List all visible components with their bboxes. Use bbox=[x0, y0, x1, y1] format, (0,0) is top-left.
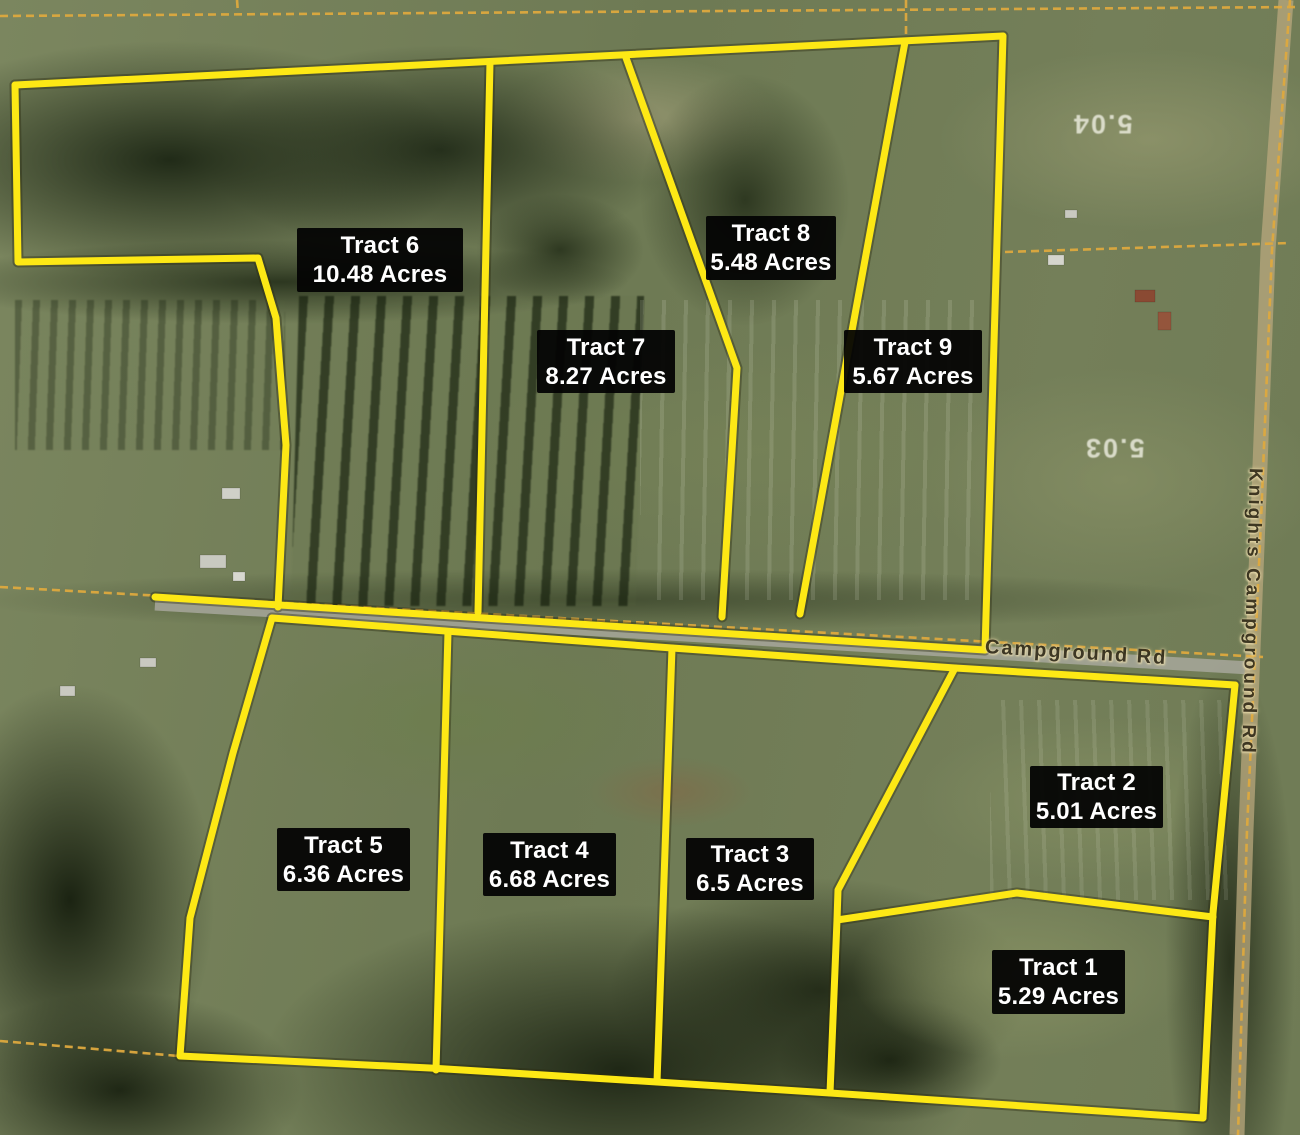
tract-name: Tract 1 bbox=[1019, 953, 1098, 982]
tract-5-label: Tract 5 6.36 Acres bbox=[277, 828, 410, 891]
tract-7-label: Tract 7 8.27 Acres bbox=[537, 330, 675, 393]
tract-acres: 10.48 Acres bbox=[313, 260, 448, 289]
tract-1-label: Tract 1 5.29 Acres bbox=[992, 950, 1125, 1014]
tract-8-label: Tract 8 5.48 Acres bbox=[706, 216, 836, 280]
tract-2-label: Tract 2 5.01 Acres bbox=[1030, 766, 1163, 828]
tract-acres: 6.68 Acres bbox=[489, 865, 610, 894]
tract-acres: 5.48 Acres bbox=[710, 248, 831, 277]
tract-acres: 5.67 Acres bbox=[852, 362, 973, 391]
tract-4-label: Tract 4 6.68 Acres bbox=[483, 833, 616, 896]
tract-9-label: Tract 9 5.67 Acres bbox=[844, 330, 982, 393]
tract-name: Tract 5 bbox=[304, 831, 383, 860]
tract-name: Tract 7 bbox=[567, 333, 646, 362]
tract-3-label: Tract 3 6.5 Acres bbox=[686, 838, 814, 900]
tract-acres: 6.5 Acres bbox=[696, 869, 804, 898]
tract-name: Tract 4 bbox=[510, 836, 589, 865]
parcel-number-label: 5.03 bbox=[1084, 432, 1145, 463]
tract-name: Tract 9 bbox=[874, 333, 953, 362]
parcel-number-label: 5.04 bbox=[1072, 108, 1133, 139]
tract-6-label: Tract 6 10.48 Acres bbox=[297, 228, 463, 292]
tract-name: Tract 2 bbox=[1057, 768, 1136, 797]
tract-acres: 8.27 Acres bbox=[545, 362, 666, 391]
tract-name: Tract 6 bbox=[341, 231, 420, 260]
tract-acres: 5.01 Acres bbox=[1036, 797, 1157, 826]
tract-name: Tract 3 bbox=[711, 840, 790, 869]
tract-acres: 5.29 Acres bbox=[998, 982, 1119, 1011]
tract-name: Tract 8 bbox=[732, 219, 811, 248]
tract-acres: 6.36 Acres bbox=[283, 860, 404, 889]
tract-map: Tract 6 10.48 Acres Tract 8 5.48 Acres T… bbox=[0, 0, 1300, 1135]
